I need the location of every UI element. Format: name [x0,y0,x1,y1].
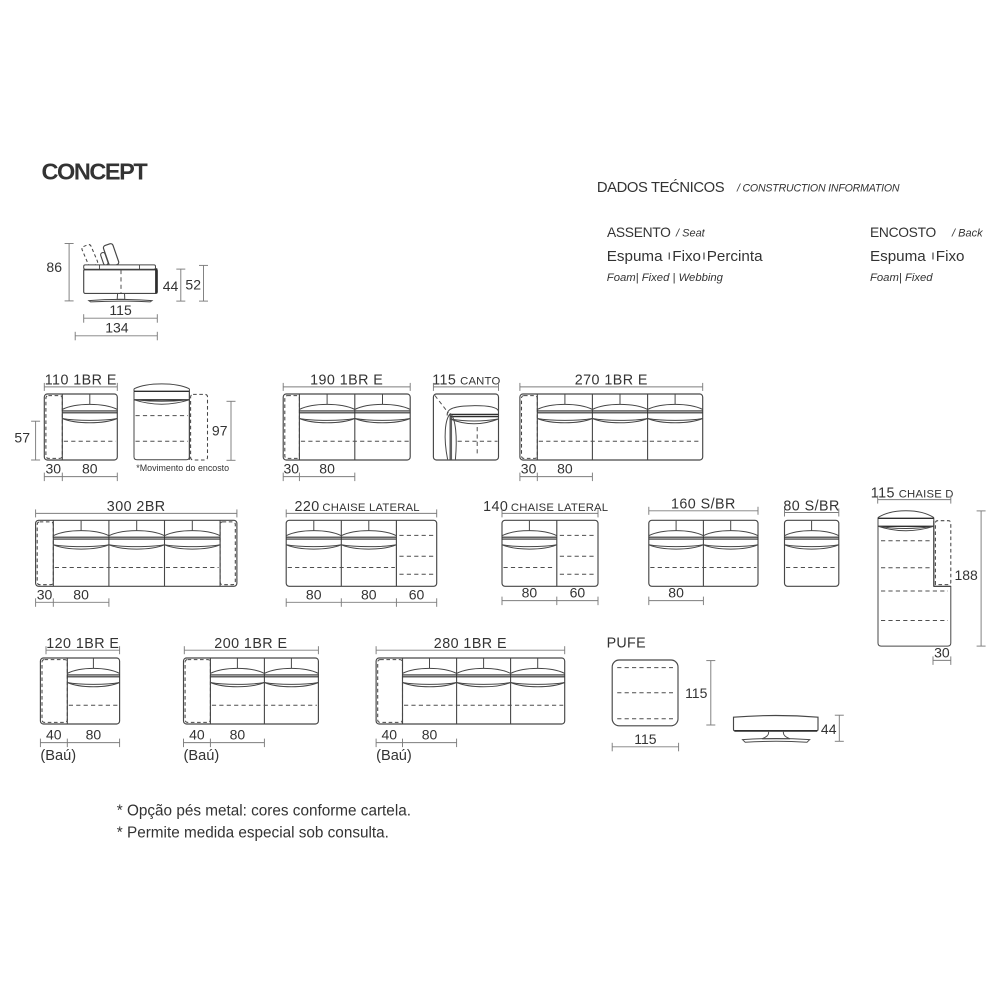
svg-text:80: 80 [82,461,98,477]
svg-text:80: 80 [422,727,438,743]
svg-text:57: 57 [14,429,30,445]
svg-text:30: 30 [284,461,300,477]
svg-text:140: 140 [483,499,508,515]
svg-text:(Baú): (Baú) [184,748,220,764]
svg-text:200 1BR E: 200 1BR E [214,636,287,652]
svg-text:CHAISE LATERAL: CHAISE LATERAL [511,502,608,514]
svg-text:115: 115 [871,485,895,501]
svg-text:/ CONSTRUCTION INFORMATION: / CONSTRUCTION INFORMATION [736,183,900,195]
svg-text:80: 80 [306,586,322,602]
svg-text:97: 97 [212,423,228,439]
svg-text:80: 80 [522,585,538,601]
svg-text:/ Seat: / Seat [675,228,706,240]
svg-text:ENCOSTO: ENCOSTO [870,225,936,240]
svg-text:Foam| Fixed | Webbing: Foam| Fixed | Webbing [607,272,724,284]
svg-text:40: 40 [189,727,205,743]
svg-text:Fixo: Fixo [672,248,701,265]
svg-text:280 1BR E: 280 1BR E [434,636,507,652]
svg-text:30: 30 [46,461,62,477]
svg-text:*Movimento do encosto: *Movimento do encosto [136,463,229,473]
svg-text:CANTO: CANTO [460,376,500,388]
svg-text:Percinta: Percinta [707,248,763,265]
svg-text:80 S/BR: 80 S/BR [783,498,839,514]
svg-text:190 1BR E: 190 1BR E [310,373,383,389]
svg-text:115: 115 [109,302,132,318]
svg-text:30: 30 [521,461,537,477]
svg-text:300 2BR: 300 2BR [107,499,166,515]
svg-text:134: 134 [105,320,129,336]
svg-text:80: 80 [86,727,102,743]
svg-text:Espuma: Espuma [870,248,926,265]
svg-text:40: 40 [382,727,398,743]
svg-text:* Opção pés metal: cores confo: * Opção pés metal: cores conforme cartel… [117,803,411,820]
svg-text:115: 115 [634,731,657,747]
svg-text:Foam| Fixed: Foam| Fixed [870,272,933,284]
svg-text:ı: ı [931,249,934,263]
svg-text:270 1BR E: 270 1BR E [575,373,648,389]
svg-text:40: 40 [46,727,62,743]
svg-text:44: 44 [163,278,179,294]
svg-text:110 1BR E: 110 1BR E [45,373,117,389]
svg-text:Espuma: Espuma [607,248,663,265]
svg-text:CHAISE D: CHAISE D [899,488,954,500]
svg-text:115: 115 [432,373,456,389]
svg-text:52: 52 [185,277,201,293]
svg-text:60: 60 [409,586,425,602]
svg-text:220: 220 [295,499,320,515]
svg-text:(Baú): (Baú) [40,748,76,764]
svg-text:* Permite medida especial sob: * Permite medida especial sob consulta. [117,824,389,841]
svg-text:30: 30 [37,586,53,602]
svg-text:ASSENTO: ASSENTO [607,225,671,240]
svg-text:80: 80 [668,585,684,601]
svg-text:PUFE: PUFE [607,635,646,651]
svg-text:ı: ı [702,249,705,263]
svg-text:160 S/BR: 160 S/BR [671,497,736,513]
svg-text:188: 188 [954,567,978,583]
svg-text:/ Back: / Back [951,228,983,240]
svg-text:Fixo: Fixo [936,248,965,265]
svg-text:DADOS TEĆNICOS: DADOS TEĆNICOS [597,179,725,196]
svg-text:80: 80 [230,727,246,743]
svg-text:80: 80 [73,586,89,602]
svg-text:86: 86 [46,259,62,275]
svg-text:120 1BR E: 120 1BR E [46,636,119,652]
svg-text:CHAISE LATERAL: CHAISE LATERAL [322,502,419,514]
svg-text:60: 60 [570,585,586,601]
svg-text:ı: ı [668,249,671,263]
svg-text:44: 44 [821,721,837,737]
svg-text:30: 30 [934,645,950,661]
svg-text:CONCEPT: CONCEPT [42,158,149,184]
svg-text:80: 80 [361,586,377,602]
svg-text:80: 80 [557,461,573,477]
svg-text:80: 80 [319,461,335,477]
svg-text:(Baú): (Baú) [376,748,412,764]
svg-text:115: 115 [685,685,708,701]
